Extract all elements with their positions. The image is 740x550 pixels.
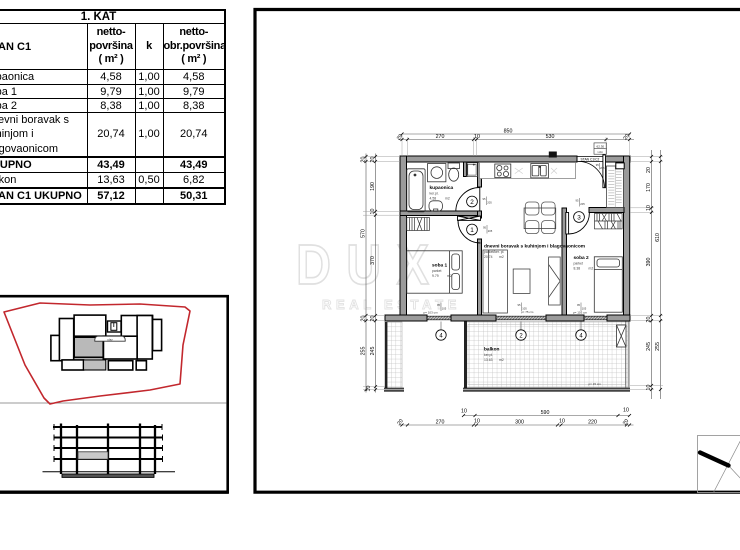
svg-text:20: 20	[646, 167, 652, 173]
svg-text:95: 95	[437, 303, 440, 307]
svg-text:10: 10	[370, 209, 376, 215]
svg-text:ker.pl.: ker.pl.	[430, 192, 439, 196]
svg-text:590: 590	[541, 410, 550, 416]
svg-text:10: 10	[646, 205, 652, 211]
svg-text:62.30: 62.30	[597, 145, 605, 149]
svg-text:p= 15 cm: p= 15 cm	[589, 382, 602, 386]
svg-text:10: 10	[646, 385, 652, 391]
svg-text:p= 75 cm: p= 75 cm	[521, 310, 534, 314]
svg-text:20: 20	[370, 157, 376, 163]
svg-text:p= 103 cm: p= 103 cm	[424, 311, 439, 315]
svg-text:270: 270	[436, 420, 445, 426]
svg-text:20: 20	[360, 316, 366, 322]
svg-text:570: 570	[360, 229, 366, 238]
svg-text:190: 190	[370, 182, 376, 191]
svg-text:t.čm: t.čm	[598, 150, 604, 154]
svg-text:20: 20	[396, 133, 404, 141]
svg-text:245: 245	[370, 347, 376, 356]
svg-text:220: 220	[588, 420, 597, 426]
svg-text:390: 390	[646, 258, 652, 267]
svg-text:10: 10	[474, 134, 480, 140]
svg-text:20: 20	[397, 418, 405, 426]
svg-text:95: 95	[577, 303, 580, 307]
svg-text:ker.pl.: ker.pl.	[484, 353, 493, 357]
svg-text:205: 205	[488, 229, 493, 233]
svg-text:370: 370	[370, 256, 376, 265]
svg-text:95: 95	[576, 199, 579, 203]
svg-text:205: 205	[600, 166, 605, 170]
svg-text:m2: m2	[447, 274, 452, 278]
svg-text:20: 20	[646, 317, 652, 323]
svg-text:m2: m2	[499, 255, 504, 259]
svg-text:ulaz: ulaz	[107, 337, 113, 341]
svg-text:10: 10	[366, 386, 372, 392]
svg-text:610: 610	[655, 233, 661, 242]
svg-text:170: 170	[646, 183, 652, 192]
svg-text:205: 205	[580, 202, 585, 206]
svg-text:4.58: 4.58	[430, 197, 437, 201]
svg-text:10: 10	[559, 419, 565, 425]
svg-text:parket: parket	[432, 269, 441, 273]
svg-text:m2: m2	[499, 358, 504, 362]
svg-text:530: 530	[546, 134, 555, 140]
svg-text:105: 105	[442, 307, 447, 311]
svg-text:3: 3	[577, 215, 581, 222]
svg-text:95: 95	[518, 303, 521, 307]
svg-text:20: 20	[370, 316, 376, 322]
svg-text:20: 20	[360, 157, 366, 163]
svg-text:8.38: 8.38	[574, 266, 581, 270]
svg-text:10: 10	[623, 408, 629, 414]
svg-text:soba 2: soba 2	[574, 255, 590, 261]
svg-text:10: 10	[474, 419, 480, 425]
svg-text:balkon: balkon	[484, 347, 500, 353]
svg-text:95: 95	[596, 163, 599, 167]
svg-text:soba 1: soba 1	[432, 263, 448, 269]
svg-text:parket: parket	[574, 261, 583, 265]
svg-text:300: 300	[515, 420, 524, 426]
svg-text:205: 205	[487, 201, 492, 205]
svg-text:255: 255	[655, 342, 661, 351]
svg-text:dnevni boravak s kuhinjom i bl: dnevni boravak s kuhinjom i blagovaonico…	[484, 244, 585, 250]
svg-text:p= 103 cm: p= 103 cm	[573, 311, 588, 315]
svg-text:95: 95	[483, 197, 486, 201]
svg-text:parket/ker. pl.: parket/ker. pl.	[484, 250, 504, 254]
svg-text:kupaonica: kupaonica	[430, 185, 454, 191]
svg-text:13.63: 13.63	[484, 358, 493, 362]
svg-text:STAN C1/C2: STAN C1/C2	[581, 158, 600, 162]
svg-text:m2: m2	[589, 266, 594, 270]
svg-text:850: 850	[504, 129, 513, 135]
svg-text:270: 270	[436, 134, 445, 140]
svg-text:9.79: 9.79	[432, 274, 439, 278]
svg-text:20.74: 20.74	[484, 255, 493, 259]
svg-text:255: 255	[360, 347, 366, 356]
svg-text:10: 10	[461, 409, 467, 415]
svg-text:1: 1	[470, 227, 474, 234]
svg-text:m2: m2	[445, 197, 450, 201]
svg-text:95: 95	[483, 226, 486, 230]
svg-text:2: 2	[470, 199, 474, 206]
svg-text:245: 245	[646, 342, 652, 351]
